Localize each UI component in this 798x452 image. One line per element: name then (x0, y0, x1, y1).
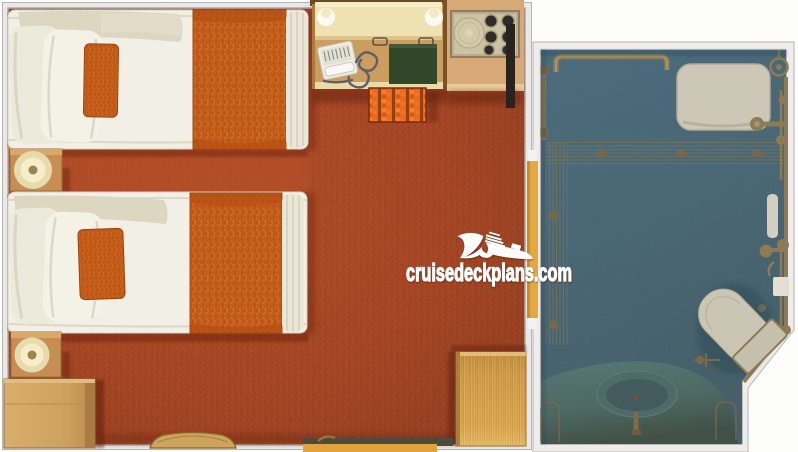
svg-text:cruisedeckplans.com: cruisedeckplans.com (406, 259, 572, 287)
